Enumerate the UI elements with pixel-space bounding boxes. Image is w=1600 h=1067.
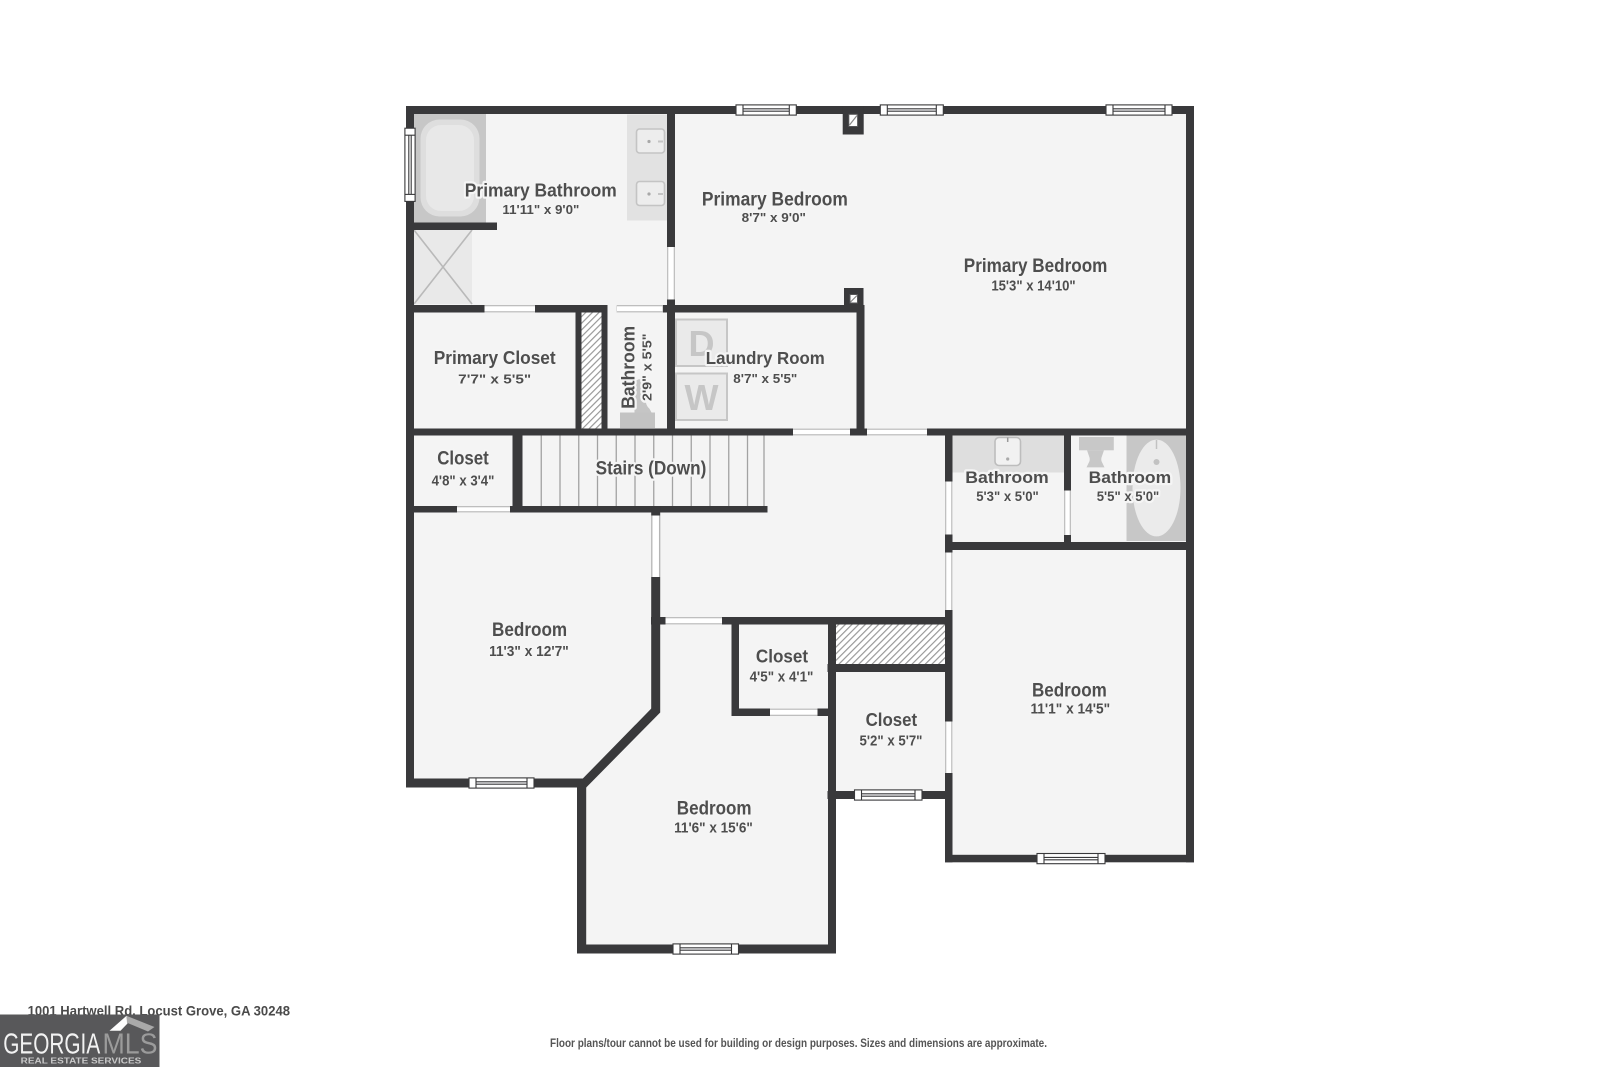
svg-text:W: W [685, 377, 719, 418]
svg-text:Bathroom: Bathroom [965, 469, 1048, 487]
svg-text:11'3" x 12'7": 11'3" x 12'7" [489, 644, 569, 660]
svg-text:Floor plans/tour cannot be use: Floor plans/tour cannot be used for buil… [550, 1036, 1047, 1050]
svg-text:Closet: Closet [437, 448, 489, 469]
svg-text:Bathroom: Bathroom [1089, 469, 1172, 487]
svg-text:Closet: Closet [866, 710, 918, 731]
svg-text:Closet: Closet [756, 646, 808, 667]
svg-text:Laundry Room: Laundry Room [706, 348, 825, 368]
svg-text:5'2" x 5'7": 5'2" x 5'7" [860, 733, 923, 750]
svg-text:Stairs (Down): Stairs (Down) [596, 459, 707, 480]
svg-text:5'3" x 5'0": 5'3" x 5'0" [976, 488, 1039, 504]
svg-text:4'5" x 4'1": 4'5" x 4'1" [750, 669, 814, 686]
svg-text:Primary Bedroom: Primary Bedroom [702, 189, 848, 211]
svg-text:Bedroom: Bedroom [1032, 681, 1107, 702]
svg-text:Bathroom: Bathroom [618, 326, 639, 409]
svg-text:11'6" x 15'6": 11'6" x 15'6" [674, 821, 753, 837]
svg-text:8'7" x 5'5": 8'7" x 5'5" [733, 371, 797, 386]
svg-text:4'8" x 3'4": 4'8" x 3'4" [432, 473, 495, 490]
svg-text:Primary Bedroom: Primary Bedroom [964, 255, 1108, 277]
svg-text:Primary Closet: Primary Closet [434, 348, 556, 368]
svg-text:2'9" x 5'5": 2'9" x 5'5" [640, 334, 655, 402]
svg-text:7'7" x 5'5": 7'7" x 5'5" [458, 372, 531, 387]
svg-text:Bedroom: Bedroom [677, 799, 752, 820]
svg-text:15'3" x 14'10": 15'3" x 14'10" [991, 279, 1075, 295]
svg-text:11'11" x 9'0": 11'11" x 9'0" [502, 202, 579, 217]
svg-text:Primary Bathroom: Primary Bathroom [465, 180, 617, 201]
svg-text:11'1" x 14'5": 11'1" x 14'5" [1030, 702, 1110, 718]
svg-text:Bedroom: Bedroom [492, 620, 567, 641]
svg-text:REAL ESTATE SERVICES: REAL ESTATE SERVICES [21, 1056, 142, 1066]
svg-text:8'7" x 9'0": 8'7" x 9'0" [742, 211, 806, 225]
svg-text:5'5" x 5'0": 5'5" x 5'0" [1097, 488, 1160, 504]
